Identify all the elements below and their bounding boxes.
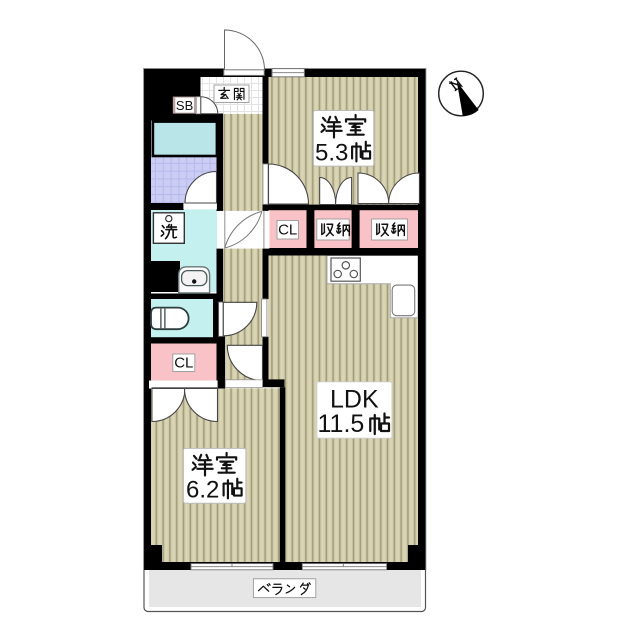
svg-text:CL: CL	[278, 222, 297, 239]
svg-text:SB: SB	[176, 98, 193, 113]
svg-text:5.3: 5.3	[315, 140, 348, 167]
svg-text:6.2: 6.2	[186, 477, 219, 504]
svg-text:11.5: 11.5	[318, 410, 365, 438]
svg-text:CL: CL	[174, 355, 193, 372]
